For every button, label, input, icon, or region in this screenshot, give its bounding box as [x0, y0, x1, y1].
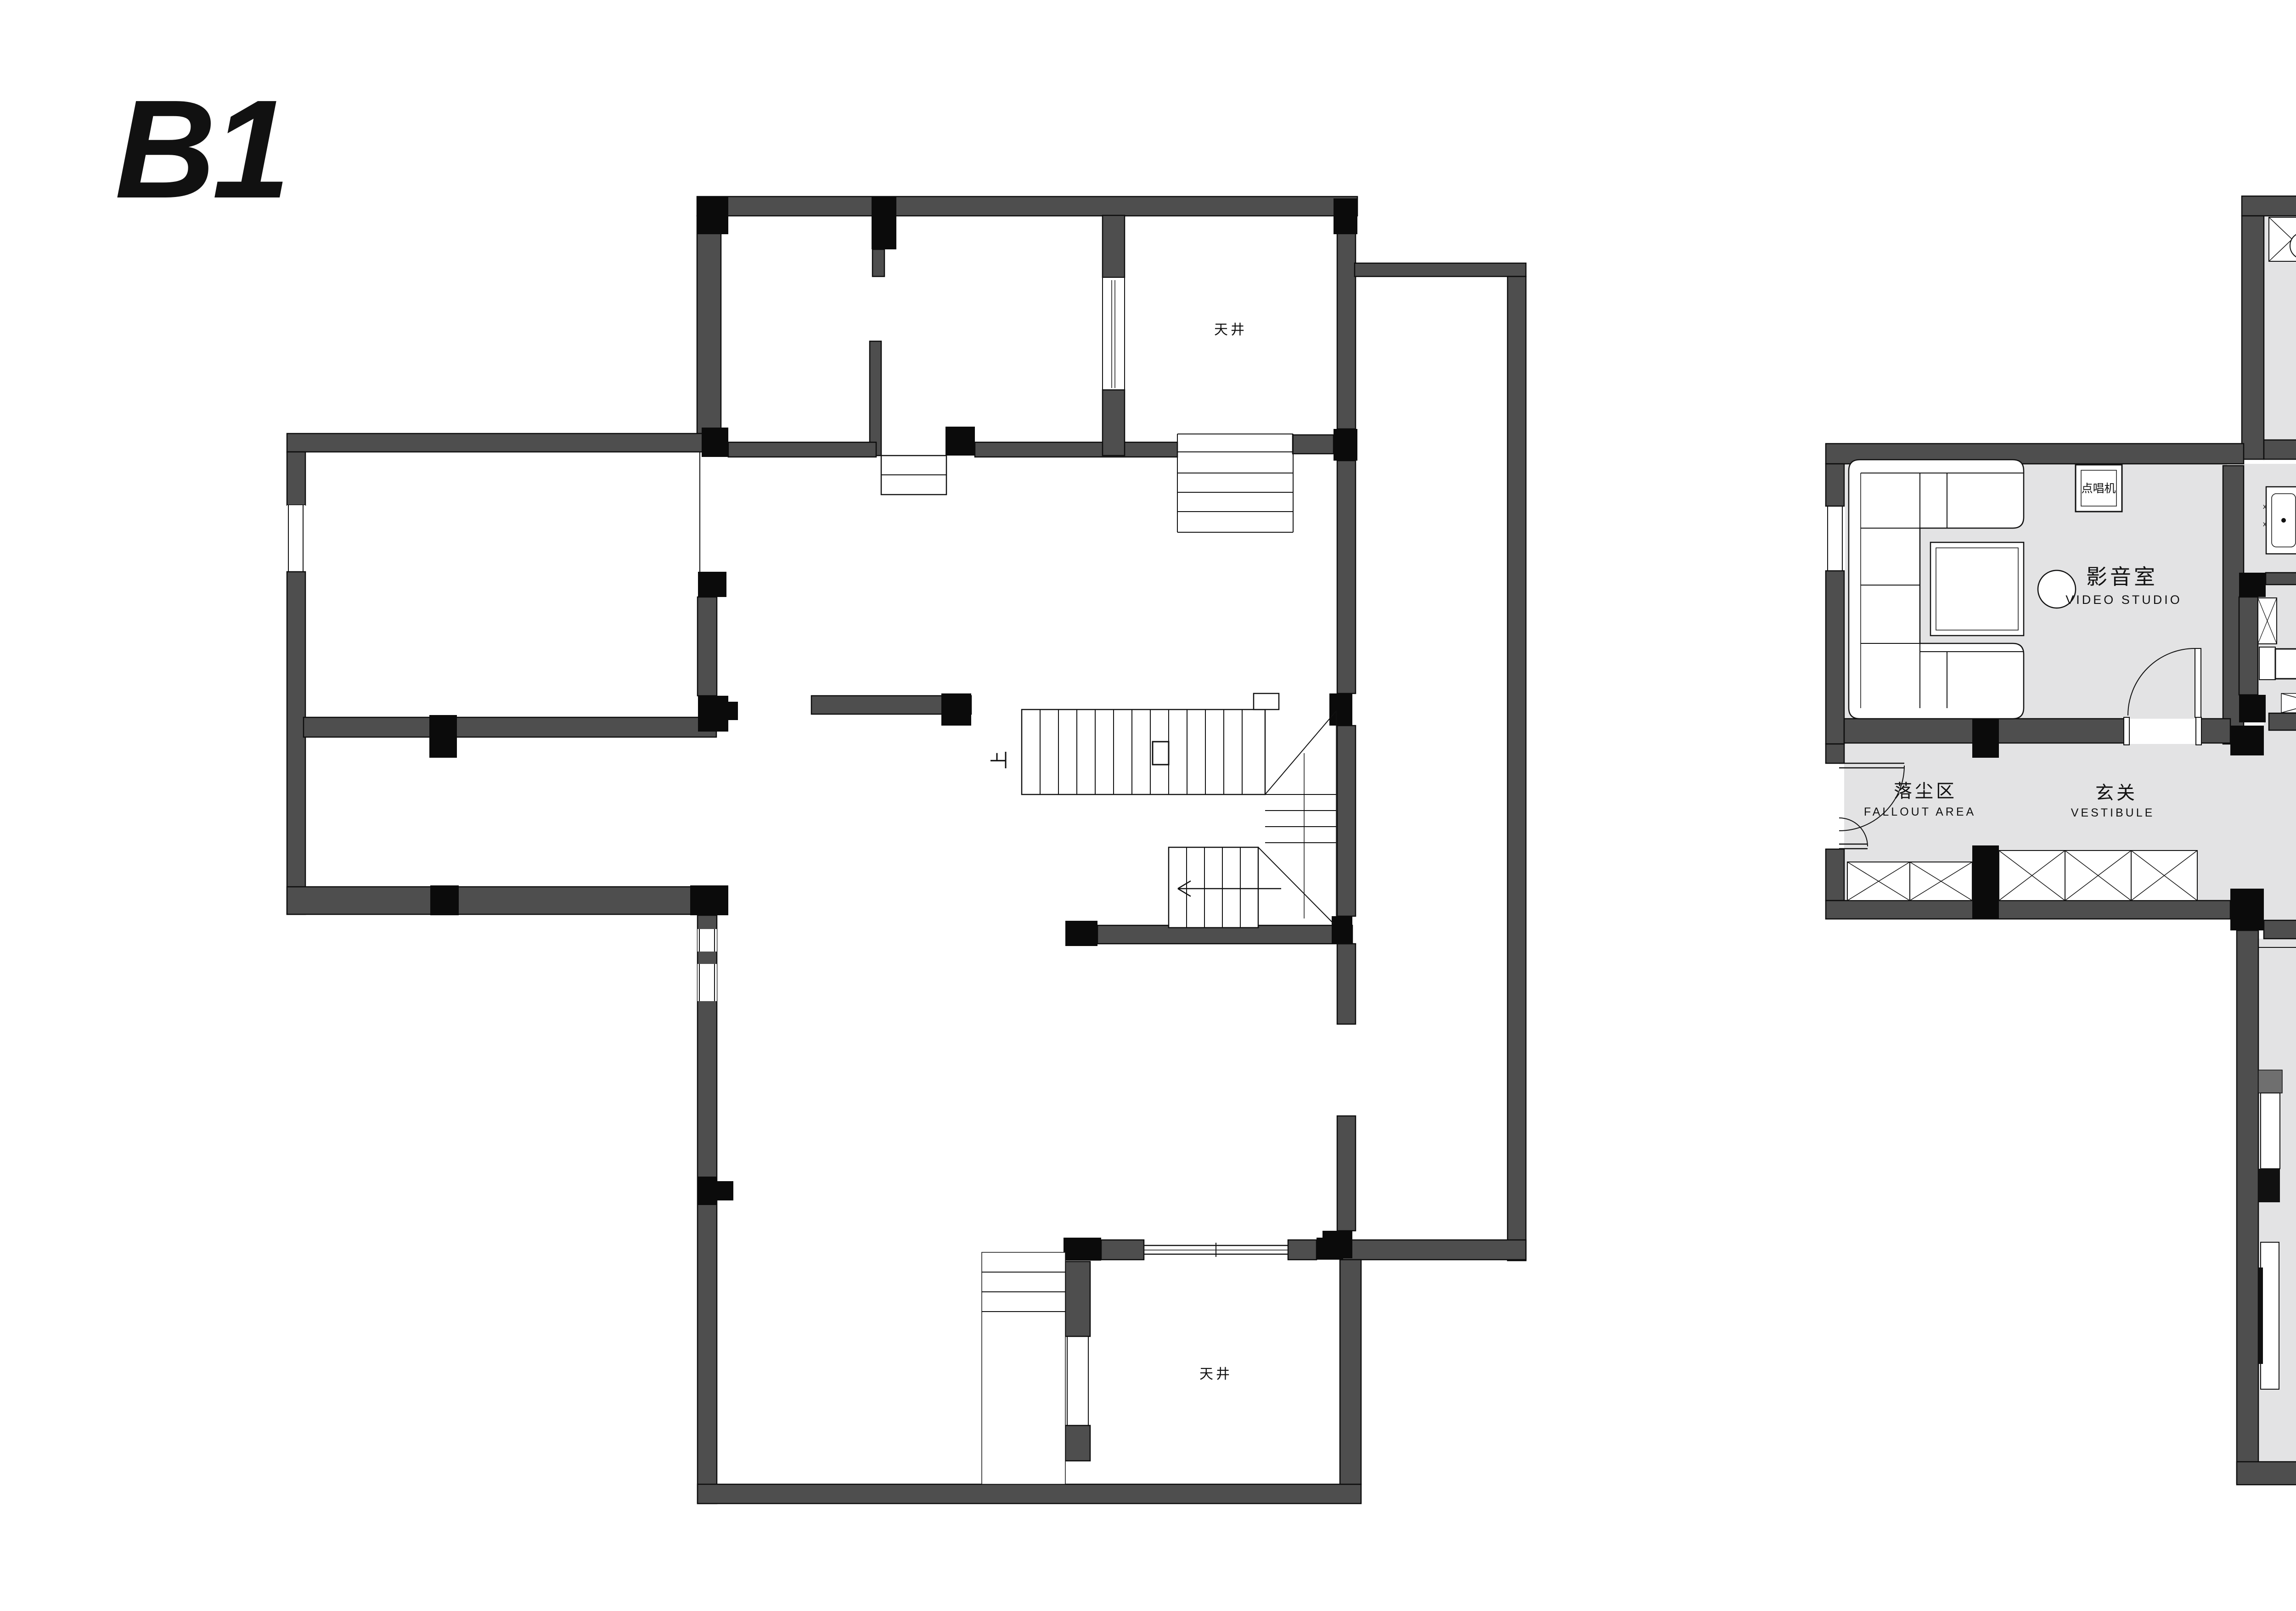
- svg-text:VESTIBULE: VESTIBULE: [2071, 806, 2155, 819]
- svg-text:FALLOUT AREA: FALLOUT AREA: [1864, 805, 1976, 818]
- svg-text:x: x: [2263, 503, 2267, 511]
- svg-text:影音室: 影音室: [2086, 565, 2158, 589]
- svg-text:上: 上: [990, 751, 1010, 769]
- svg-text:x: x: [2263, 520, 2267, 528]
- svg-text:VIDEO STUDIO: VIDEO STUDIO: [2065, 593, 2182, 607]
- svg-text:天井: 天井: [1199, 1367, 1232, 1382]
- svg-text:天井: 天井: [1214, 322, 1247, 338]
- svg-text:点唱机: 点唱机: [2081, 482, 2116, 495]
- svg-text:B1: B1: [115, 71, 287, 227]
- svg-text:落尘区: 落尘区: [1894, 781, 1957, 801]
- svg-text:玄关: 玄关: [2095, 783, 2138, 803]
